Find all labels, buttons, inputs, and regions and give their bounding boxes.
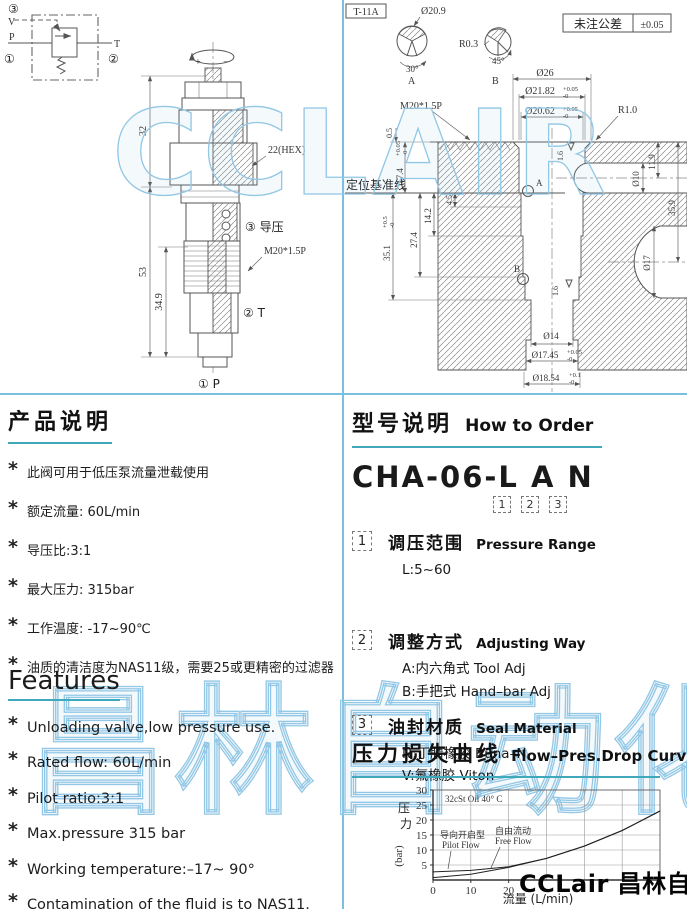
cavity-tag: T-11A — [353, 7, 379, 18]
dim-d2182: Ø21.82 — [525, 86, 555, 97]
features-list: *Unloading valve,low pressure use. *Rate… — [8, 717, 342, 909]
feature-item-text: Unloading valve,low pressure use. — [27, 717, 275, 739]
dim-d2182-tol-minus: -0 — [563, 93, 568, 100]
curve-title-cn: 压力损失曲线 — [352, 742, 502, 766]
chart-y-tick-label: 25 — [416, 800, 428, 812]
dim-35-1: 35.1 — [382, 245, 392, 261]
bullet-star-icon: * — [8, 788, 18, 802]
feature-item-text: Contamination of the fluid is to NAS11. … — [27, 894, 342, 909]
dim-d1854-tol-plus: +0.1 — [569, 372, 581, 379]
label-port-p: ① P — [198, 377, 220, 391]
catalog-page: CCLAIR 昌林自动化 ③ V P ① T — [0, 0, 687, 909]
dim-17-4-tol-plus: +0.05 — [395, 141, 402, 156]
group-title-cn: 油封材质 — [388, 718, 464, 738]
dim-35-9: 35.9 — [667, 200, 677, 216]
features-title: Features — [8, 666, 120, 701]
finish-1-6-bottom: 1.6 — [551, 286, 560, 296]
group-option-line: L:5~60 — [402, 559, 684, 581]
cavity-detail-drawing: T-11A 未注公差 ±0.05 Ø20.9 30° A R0.3 45° — [345, 4, 687, 392]
vertical-divider — [342, 0, 344, 909]
list-item: *工作温度: -17~90℃ — [8, 618, 338, 637]
chart-y-tick-label: 15 — [416, 830, 428, 842]
how-to-order-header: 型号说明 How to Order — [352, 406, 602, 448]
pilot-flow-label-cn: 导向开启型 — [440, 829, 485, 840]
bullet-star-icon: * — [8, 579, 18, 593]
marker-b: B — [514, 264, 520, 274]
bullet-star-icon: * — [8, 823, 18, 837]
dim-d2062: Ø20.62 — [525, 106, 555, 117]
curve-header: 压力损失曲线 Flow–Pres.Drop Curve — [352, 738, 660, 778]
digit-box-3: 3 — [549, 496, 567, 513]
order-group-pressure-range: 1 调压范围 Pressure Range — [352, 529, 684, 554]
symbol-port-v: V — [8, 17, 16, 28]
list-item: *此阀可用于低压泵流量泄载使用 — [8, 462, 338, 481]
group-title-en: Pressure Range — [476, 537, 596, 553]
model-code: CHA-06-L A N — [352, 460, 684, 494]
how-to-order-section: 型号说明 How to Order CHA-06-L A N 1 2 3 1 调… — [352, 406, 684, 787]
feature-item-text: Pilot ratio:3:1 — [27, 788, 124, 810]
tolerance-label: 未注公差 — [574, 16, 622, 31]
marker-a: A — [536, 178, 543, 188]
dim-d2062-tol-plus: +0.05 — [563, 106, 578, 113]
symbol-port2-number: ② — [108, 52, 119, 66]
group-number: 2 — [352, 630, 372, 650]
free-flow-label-en: Free Flow — [495, 836, 532, 846]
list-item: *Max.pressure 315 bar — [8, 823, 342, 845]
dim-d2182-tol-plus: +0.05 — [563, 86, 578, 93]
bullet-star-icon: * — [8, 618, 18, 632]
label-hex22: 22(HEX) — [268, 145, 305, 156]
dim-d17: Ø17 — [642, 255, 652, 271]
detail-a-diameter: Ø20.9 — [421, 6, 446, 17]
product-item-text: 导压比:3:1 — [27, 540, 91, 559]
label-port-t: ② T — [243, 306, 266, 320]
chart-x-tick-label: 10 — [465, 885, 477, 897]
how-to-order-title-en: How to Order — [465, 416, 593, 436]
group-title-cn: 调压范围 — [388, 534, 464, 554]
y-axis-label-cn-2: 力 — [400, 817, 412, 831]
group-number: 1 — [352, 531, 372, 551]
bullet-star-icon: * — [8, 859, 18, 873]
bullet-star-icon: * — [8, 501, 18, 515]
product-description-title: 产品说明 — [8, 404, 112, 444]
label-thread-m20: M20*1.5P — [264, 246, 306, 257]
bullet-star-icon: * — [8, 540, 18, 554]
finish-1-6-top: 1.6 — [556, 151, 565, 161]
symbol-port3-number: ③ — [8, 2, 19, 16]
list-item: *最大压力: 315bar — [8, 579, 338, 598]
detail-b-angle: 45° — [492, 56, 505, 66]
list-item: *Working temperature:–17~ 90° — [8, 859, 342, 881]
dim-27-4: 27.4 — [409, 232, 419, 248]
dim-4-5: 4.5 — [445, 195, 454, 205]
dim-d10: Ø10 — [631, 171, 641, 187]
dim-53: 53 — [138, 267, 149, 277]
chart-y-tick-label: 30 — [416, 785, 428, 797]
curve-title-en: Flow–Pres.Drop Curve — [511, 747, 687, 765]
group-title-cn: 调整方式 — [388, 633, 464, 653]
tolerance-value: ±0.05 — [641, 20, 664, 31]
list-item: *额定流量: 60L/min — [8, 501, 338, 520]
detail-b-label: B — [492, 76, 499, 87]
product-item-text: 额定流量: 60L/min — [27, 501, 140, 520]
free-flow-label-cn: 自由流动 — [495, 825, 531, 836]
model-code-digit-boxes: 1 2 3 — [493, 496, 684, 513]
chart-annotation: 32cSt Oil 40° C — [445, 794, 502, 804]
dim-d14: Ø14 — [543, 331, 559, 341]
bullet-star-icon: * — [8, 752, 18, 766]
y-axis-unit: (bar) — [393, 845, 405, 867]
detail-a-label: A — [408, 76, 416, 87]
dim-d1745: Ø17.45 — [532, 350, 559, 360]
order-group-adjusting-way: 2 调整方式 Adjusting Way — [352, 628, 684, 653]
horizontal-divider — [0, 393, 687, 395]
group-option-line: B:手把式 Hand–bar Adj — [402, 681, 684, 703]
dim-34-9: 34.9 — [154, 293, 165, 311]
group-option-line: A:内六角式 Tool Adj — [402, 658, 684, 680]
y-axis-label-cn-1: 压 — [398, 801, 410, 815]
digit-box-1: 1 — [493, 496, 511, 513]
bullet-star-icon: * — [8, 717, 18, 731]
company-logo: CCLair 昌林自动化 — [519, 864, 687, 899]
curve-section: 压力损失曲线 Flow–Pres.Drop Curve — [352, 738, 684, 778]
features-section: Features *Unloading valve,low pressure u… — [8, 666, 342, 909]
dim-thread-m20: M20*1.5P — [400, 101, 442, 112]
dim-17-4: 17.4 — [395, 168, 405, 184]
digit-box-2: 2 — [521, 496, 539, 513]
group-title-en: Adjusting Way — [476, 636, 585, 652]
symbol-port1-number: ① — [4, 52, 15, 66]
feature-item-text: Rated flow: 60L/min — [27, 752, 171, 774]
dim-d1854: Ø18.54 — [533, 373, 560, 383]
order-group-seal-material: 3 油封材质 Seal Material — [352, 713, 684, 738]
group-title-en: Seal Material — [476, 721, 577, 737]
dim-d1745-tol-plus: +0.05 — [567, 349, 582, 356]
bullet-star-icon: * — [8, 462, 18, 476]
dim-r10: R1.0 — [618, 105, 637, 116]
product-description-list: *此阀可用于低压泵流量泄载使用 *额定流量: 60L/min *导压比:3:1 … — [8, 462, 338, 676]
list-item: *Contamination of the fluid is to NAS11.… — [8, 894, 342, 909]
group-number: 3 — [352, 715, 372, 735]
list-item: *导压比:3:1 — [8, 540, 338, 559]
dim-d26: Ø26 — [536, 68, 553, 79]
hydraulic-symbol: ③ V P ① T ② — [4, 2, 120, 80]
pilot-flow-leader-line — [448, 851, 451, 869]
list-item: *Unloading valve,low pressure use. — [8, 717, 342, 739]
dim-d1854-tol-minus: -0 — [569, 379, 574, 386]
dim-d1745-tol-minus: -0 — [567, 356, 572, 363]
dim-11-9: 11.9 — [647, 154, 657, 170]
dim-35-1-tol-minus: -0 — [389, 223, 396, 228]
adjust-minus: − — [223, 57, 229, 68]
group-option-lines: A:内六角式 Tool Adj B:手把式 Hand–bar Adj — [402, 658, 684, 703]
feature-item-text: Max.pressure 315 bar — [27, 823, 185, 845]
symbol-port-p: P — [9, 32, 15, 43]
list-item: *Pilot ratio:3:1 — [8, 788, 342, 810]
adjust-plus: + — [195, 57, 201, 68]
dim-35-1-tol-plus: +0.5 — [382, 216, 389, 228]
detail-a-angle: 30° — [406, 64, 419, 74]
feature-item-text: Working temperature:–17~ 90° — [27, 859, 255, 881]
chart-y-tick-label: 5 — [422, 860, 428, 872]
dim-0-5: 0.5 — [385, 128, 394, 138]
symbol-port-t: T — [114, 39, 120, 50]
detail-b-radius: R0.3 — [459, 39, 478, 50]
dim-14-2: 14.2 — [423, 208, 433, 224]
dim-d2062-tol-minus: -0 — [563, 113, 568, 120]
bullet-star-icon: * — [8, 894, 18, 908]
pilot-flow-label-en: Pilot Flow — [442, 840, 480, 850]
chart-y-tick-label: 10 — [416, 845, 428, 857]
label-pilot-port: ③ 导压 — [245, 220, 284, 234]
product-item-text: 此阀可用于低压泵流量泄载使用 — [27, 462, 209, 481]
list-item: *Rated flow: 60L/min — [8, 752, 342, 774]
valve-section-view: + − — [138, 42, 306, 391]
chart-y-tick-label: 20 — [416, 815, 428, 827]
chart-x-tick-label: 0 — [430, 885, 436, 897]
how-to-order-title-cn: 型号说明 — [352, 412, 452, 437]
product-item-text: 最大压力: 315bar — [27, 579, 134, 598]
product-description-section: 产品说明 *此阀可用于低压泵流量泄载使用 *额定流量: 60L/min *导压比… — [8, 404, 338, 696]
product-item-text: 工作温度: -17~90℃ — [27, 618, 151, 637]
dim-17-4-tol-minus: -0 — [402, 151, 409, 156]
dim-32: 32 — [138, 126, 149, 136]
